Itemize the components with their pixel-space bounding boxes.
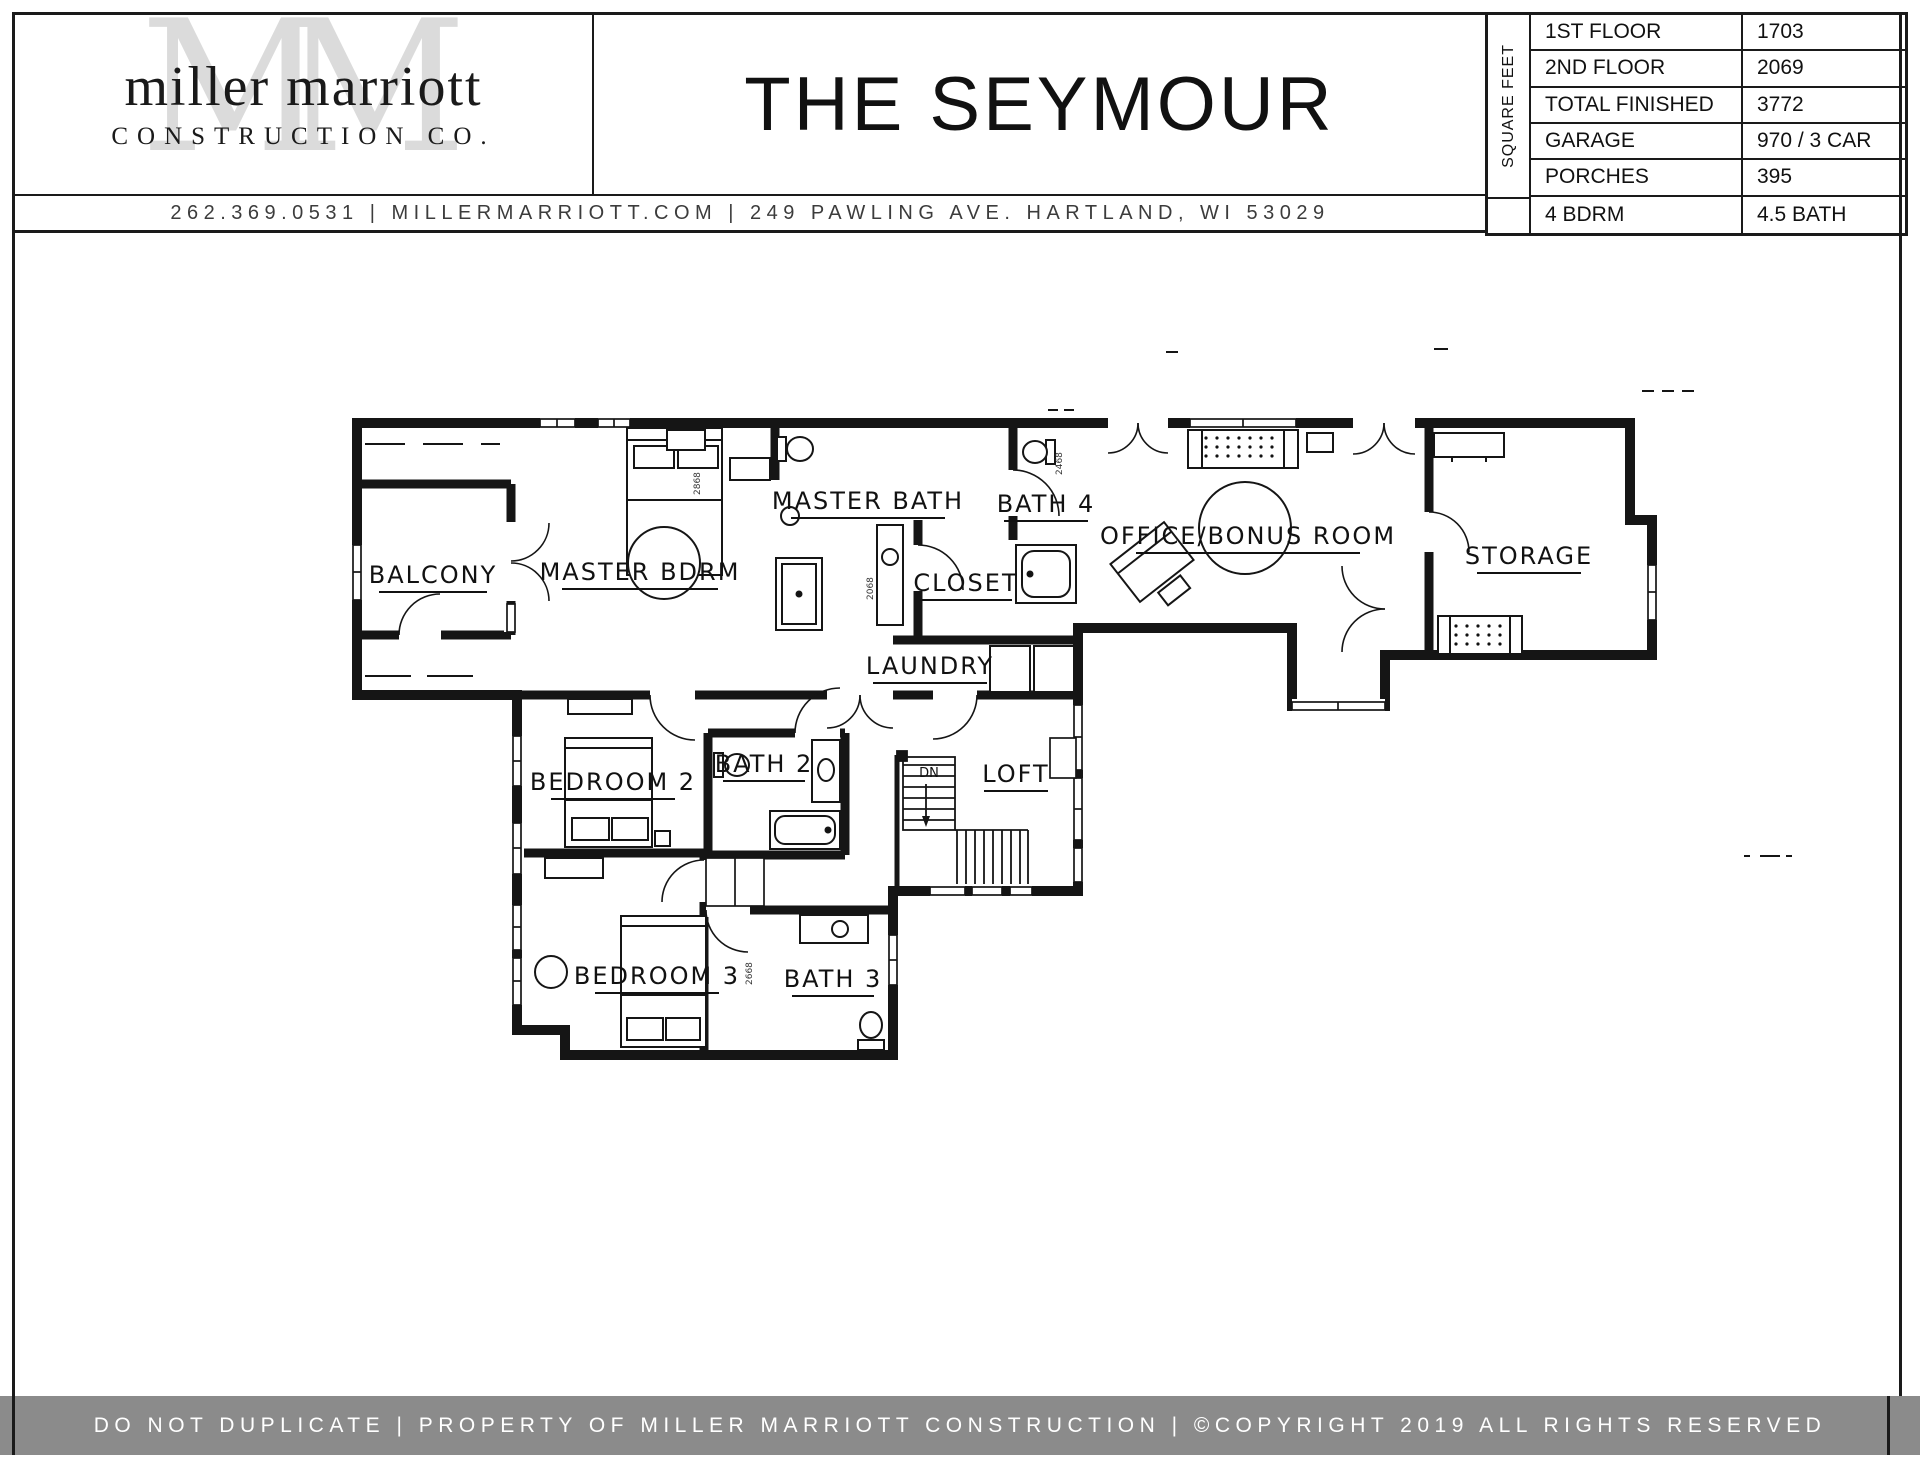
spec-row-value: 2069: [1743, 51, 1905, 87]
spec-row-label: PORCHES: [1531, 160, 1743, 196]
border-stub-left: [12, 1396, 15, 1455]
title-box: THE SEYMOUR: [594, 15, 1485, 194]
spec-row-value: 1703: [1743, 15, 1905, 51]
spec-row-label: 2ND FLOOR: [1531, 51, 1743, 87]
spec-row-label: TOTAL FINISHED: [1531, 88, 1743, 124]
company-logo: MM miller marriott CONSTRUCTION CO.: [15, 15, 594, 194]
footer-bar: DO NOT DUPLICATE | PROPERTY OF MILLER MA…: [0, 1396, 1920, 1455]
contact-text: 262.369.0531 | MILLERMARRIOTT.COM | 249 …: [170, 202, 1329, 225]
border-stub-right: [1887, 1396, 1890, 1455]
spec-strip-empty: [1488, 197, 1531, 233]
spec-table: SQUARE FEET 1ST FLOOR 1703 2ND FLOOR 206…: [1485, 12, 1908, 236]
logo-name: miller marriott: [124, 59, 482, 115]
spec-row-value: 970 / 3 CAR: [1743, 124, 1905, 160]
floor-plan-sheet: BALCONY MASTER BDRM MASTER BATH BATH 4 C…: [0, 0, 1920, 1468]
page-title: THE SEYMOUR: [744, 61, 1334, 148]
spec-row-label: 4 BDRM: [1531, 197, 1743, 233]
spec-row-value: 3772: [1743, 88, 1905, 124]
spec-row-label: 1ST FLOOR: [1531, 15, 1743, 51]
spec-row-label: GARAGE: [1531, 124, 1743, 160]
contact-bar: 262.369.0531 | MILLERMARRIOTT.COM | 249 …: [15, 194, 1485, 233]
logo-subtitle: CONSTRUCTION CO.: [111, 123, 495, 151]
spec-row-value: 4.5 BATH: [1743, 197, 1905, 233]
spec-table-side-label: SQUARE FEET: [1488, 15, 1531, 197]
footer-text: DO NOT DUPLICATE | PROPERTY OF MILLER MA…: [94, 1414, 1827, 1438]
square-feet-label: SQUARE FEET: [1500, 44, 1518, 168]
spec-row-value: 395: [1743, 160, 1905, 196]
